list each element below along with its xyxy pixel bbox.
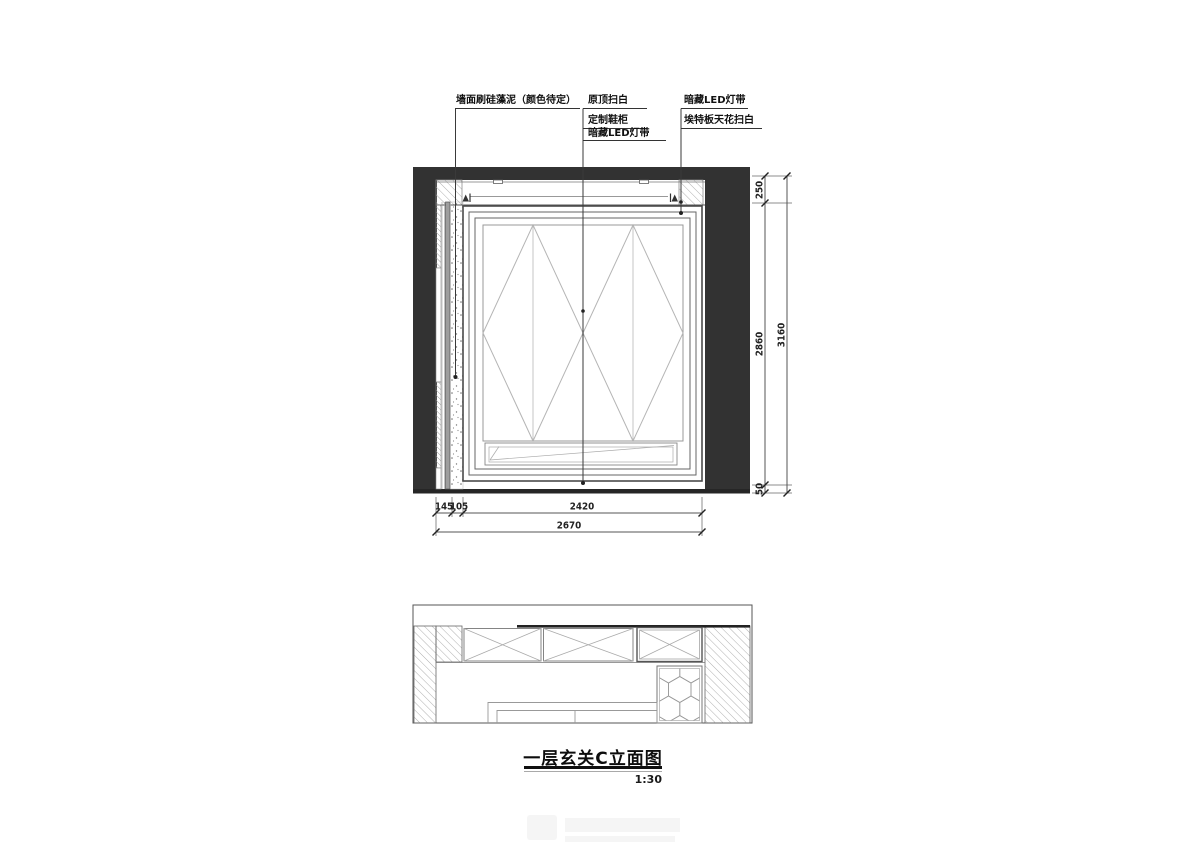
led-fixture-icon <box>463 194 471 203</box>
finish-board-section <box>446 202 451 489</box>
annotation-shoe-cabinet: 定制鞋柜 <box>588 116 628 126</box>
annotation-led-strip: 暗藏LED灯带 <box>588 129 650 139</box>
dim-right-250: 250 <box>755 181 766 199</box>
led-fixture-icon <box>671 194 679 203</box>
drawing-sheet: 墙面刷硅藻泥（颜色待定） 原顶扫白 定制鞋柜 暗藏LED灯带 暗藏LED灯带 埃… <box>0 0 1200 859</box>
leader-dot <box>581 309 585 313</box>
annotation-ceiling-paint: 原顶扫白 <box>588 96 628 106</box>
leader-dot <box>581 481 585 485</box>
base-band <box>485 443 677 465</box>
plan-left-wall <box>414 626 436 723</box>
dim-bottom-2670: 2670 <box>557 521 582 532</box>
title-underline-heavy <box>524 766 662 769</box>
dim-bottom-105: 105 <box>450 502 468 513</box>
leader-lines <box>454 109 684 486</box>
annotation-led-strip-right: 暗藏LED灯带 <box>684 96 746 106</box>
dim-right-2860: 2860 <box>755 332 766 357</box>
honeycomb-pattern <box>646 657 714 742</box>
ceiling-clip-right <box>640 180 649 184</box>
plan-cabinet-boxes <box>464 628 702 662</box>
plan-wall-heavy-line <box>517 625 750 628</box>
annotation-wall-finish: 墙面刷硅藻泥（颜色待定） <box>456 96 576 106</box>
title-underline-light <box>524 771 662 772</box>
leader-dot <box>679 211 683 215</box>
dim-right-3160: 3160 <box>777 323 788 348</box>
elevation-drawing <box>413 109 792 537</box>
plan-bench-outline <box>488 703 657 724</box>
plan-hex-tile-strip <box>646 657 714 742</box>
plan-right-wall <box>705 626 750 723</box>
annotation-etex-ceiling: 埃特板天花扫白 <box>684 116 754 126</box>
left-wall-section <box>413 180 437 489</box>
plan-boundary <box>413 605 752 723</box>
ceiling-clip-left <box>494 180 503 184</box>
ceiling-hatch-left <box>436 180 462 205</box>
dim-right-50: 50 <box>755 483 766 495</box>
drawing-scale: 1:30 <box>635 773 662 786</box>
plan-wall-stub <box>436 626 462 662</box>
dim-bottom-2420: 2420 <box>570 502 595 513</box>
diatom-mud-texture <box>451 202 464 489</box>
leader-dot <box>454 375 458 379</box>
right-wall-section <box>705 180 750 489</box>
ceiling-slab <box>413 167 750 180</box>
floor-line <box>413 489 750 494</box>
leader-dot <box>679 200 683 204</box>
plan-view-drawing <box>413 605 752 742</box>
wall-finish-section <box>436 202 463 489</box>
